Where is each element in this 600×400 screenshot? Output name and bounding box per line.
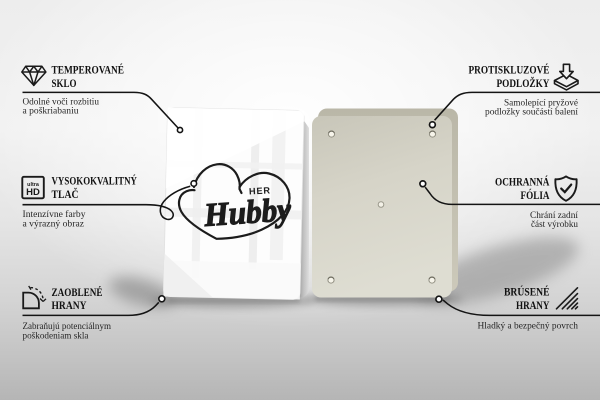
svg-text:TEMPEROVANÉ: TEMPEROVANÉ: [52, 62, 125, 76]
svg-text:část výrobku: část výrobku: [531, 219, 578, 230]
svg-text:poškodeniam skla: poškodeniam skla: [23, 330, 90, 341]
svg-text:HD: HD: [26, 187, 40, 198]
svg-text:PROTISKLUZOVÉ: PROTISKLUZOVÉ: [469, 62, 550, 76]
svg-text:HRANY: HRANY: [516, 300, 550, 312]
svg-text:ZAOBLENÉ: ZAOBLENÉ: [52, 285, 103, 299]
svg-text:FÓLIA: FÓLIA: [521, 188, 551, 202]
svg-text:a výrazný obraz: a výrazný obraz: [23, 218, 85, 229]
svg-text:VYSOKOKVALITNÝ: VYSOKOKVALITNÝ: [52, 173, 138, 187]
svg-text:TLAČ: TLAČ: [52, 187, 79, 201]
svg-text:HRANY: HRANY: [52, 300, 88, 312]
svg-text:BRÚSENÉ: BRÚSENÉ: [504, 285, 550, 299]
svg-text:PODLOŽKY: PODLOŽKY: [497, 76, 551, 90]
svg-text:Hubby: Hubby: [202, 192, 293, 234]
svg-text:SKLO: SKLO: [52, 78, 77, 90]
svg-text:a poškriabaniu: a poškriabaniu: [23, 106, 79, 117]
svg-text:podložky součástí balení: podložky součástí balení: [485, 107, 578, 118]
svg-text:OCHRANNÁ: OCHRANNÁ: [495, 175, 550, 189]
svg-text:Hladký a bezpečný povrch: Hladký a bezpečný povrch: [478, 321, 579, 332]
